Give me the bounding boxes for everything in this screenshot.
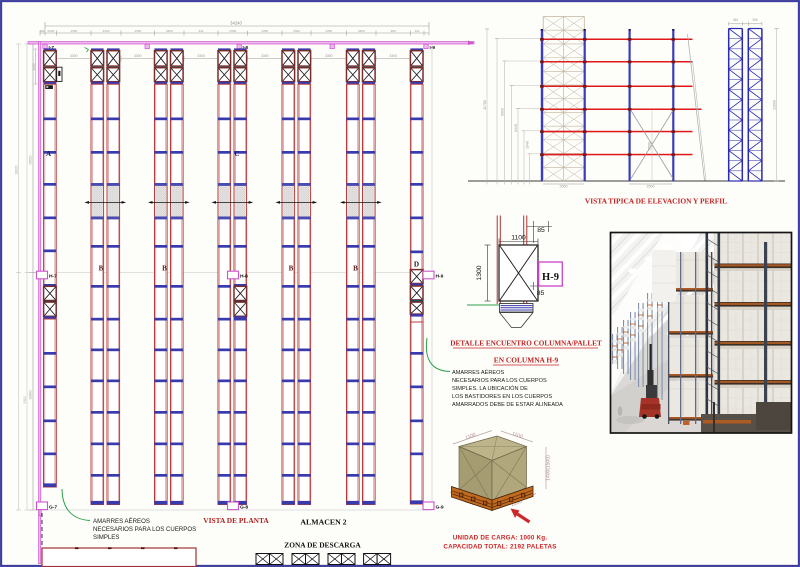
svg-text:3300: 3300 [197, 54, 205, 58]
svg-text:6440: 6440 [514, 124, 518, 132]
svg-text:2500: 2500 [647, 185, 655, 189]
svg-text:B: B [99, 265, 104, 273]
svg-text:B: B [162, 265, 167, 273]
svg-text:341: 341 [198, 29, 203, 33]
svg-text:1300: 1300 [476, 265, 483, 280]
svg-text:CAPACIDAD TOTAL: 2192 PALETAS: CAPACIDAD TOTAL: 2192 PALETAS [443, 544, 556, 551]
svg-text:3300: 3300 [70, 54, 78, 58]
svg-text:9520: 9520 [28, 155, 33, 165]
svg-text:3300: 3300 [325, 54, 333, 58]
svg-text:AMARRADOS DEBE DE ESTAR ALINEA: AMARRADOS DEBE DE ESTAR ALINEADA [452, 402, 563, 408]
svg-text:18620: 18620 [15, 165, 19, 174]
svg-text:9000: 9000 [501, 108, 505, 116]
svg-text:H-9: H-9 [436, 274, 444, 280]
svg-text:3300: 3300 [261, 54, 269, 58]
svg-text:9310: 9310 [23, 396, 27, 403]
svg-text:3300: 3300 [166, 29, 173, 33]
svg-text:900: 900 [391, 29, 396, 33]
svg-text:D: D [414, 261, 419, 269]
svg-text:3300: 3300 [103, 29, 110, 33]
svg-text:VISTA DE PLANTA: VISTA DE PLANTA [203, 516, 269, 525]
svg-text:ALMACEN 2: ALMACEN 2 [300, 518, 346, 527]
svg-text:1350: 1350 [261, 29, 268, 33]
svg-text:B: B [353, 265, 358, 273]
svg-text:H-9: H-9 [542, 272, 559, 283]
svg-text:EN COLUMNA H-9: EN COLUMNA H-9 [494, 356, 559, 365]
svg-text:1350: 1350 [70, 29, 77, 33]
svg-text:1500: 1500 [32, 63, 36, 70]
svg-text:SIMPLES: SIMPLES [93, 534, 119, 541]
svg-text:3300: 3300 [389, 54, 397, 58]
svg-text:3300: 3300 [134, 54, 142, 58]
svg-text:3300: 3300 [47, 29, 54, 33]
svg-text:C: C [234, 150, 239, 158]
svg-text:1350: 1350 [325, 29, 332, 33]
svg-text:G-7: G-7 [49, 504, 57, 510]
svg-text:B: B [289, 265, 294, 273]
svg-text:900: 900 [40, 29, 45, 33]
svg-text:85: 85 [537, 290, 545, 297]
svg-text:ZONA DE DESCARGA: ZONA DE DESCARGA [284, 541, 361, 550]
svg-text:NECESARIOS PARA LOS CUERPOS: NECESARIOS PARA LOS CUERPOS [452, 378, 547, 384]
svg-text:SIMPLES. LA UBICACIÓN DE: SIMPLES. LA UBICACIÓN DE [452, 385, 528, 392]
svg-text:NECESARIOS PARA LOS CUERPOS: NECESARIOS PARA LOS CUERPOS [93, 526, 196, 533]
svg-text:G-9: G-9 [436, 504, 444, 510]
svg-text:DETALLE ENCUENTRO COLUMNA/PALL: DETALLE ENCUENTRO COLUMNA/PALLET [450, 340, 602, 348]
svg-text:AMARRES AÉREOS: AMARRES AÉREOS [93, 518, 150, 525]
svg-text:H-7: H-7 [49, 274, 57, 280]
svg-text:A: A [46, 150, 51, 158]
svg-text:VISTA TIPICA DE ELEVACION Y PE: VISTA TIPICA DE ELEVACION Y PERFIL [585, 197, 727, 206]
svg-text:85: 85 [537, 227, 545, 234]
svg-text:5500: 5500 [648, 142, 652, 150]
svg-text:1100: 1100 [511, 235, 526, 242]
svg-text:1940: 1940 [526, 141, 530, 149]
svg-text:34240: 34240 [230, 21, 242, 26]
svg-text:9000: 9000 [28, 390, 33, 400]
svg-text:UNIDAD DE CARGA: 1000 Kg.: UNIDAD DE CARGA: 1000 Kg. [453, 535, 548, 542]
svg-text:340: 340 [752, 18, 758, 22]
svg-text:LOS BASTIDORES EN LOS CUERPOS: LOS BASTIDORES EN LOS CUERPOS [452, 394, 552, 400]
svg-text:AMARRES AÉREOS: AMARRES AÉREOS [452, 369, 504, 376]
svg-text:11780: 11780 [483, 100, 487, 110]
svg-text:2500: 2500 [560, 185, 568, 189]
svg-text:340: 340 [733, 18, 739, 22]
svg-text:3300: 3300 [358, 29, 365, 33]
svg-text:341: 341 [415, 29, 420, 33]
svg-text:I-9: I-9 [430, 45, 436, 51]
svg-text:H-8: H-8 [240, 274, 248, 280]
svg-text:13000: 13000 [773, 100, 777, 110]
svg-text:1350: 1350 [134, 29, 141, 33]
svg-text:3300: 3300 [229, 29, 236, 33]
svg-text:1400(1500): 1400(1500) [546, 455, 552, 481]
svg-text:3300: 3300 [293, 29, 300, 33]
svg-text:G-8: G-8 [240, 504, 248, 510]
